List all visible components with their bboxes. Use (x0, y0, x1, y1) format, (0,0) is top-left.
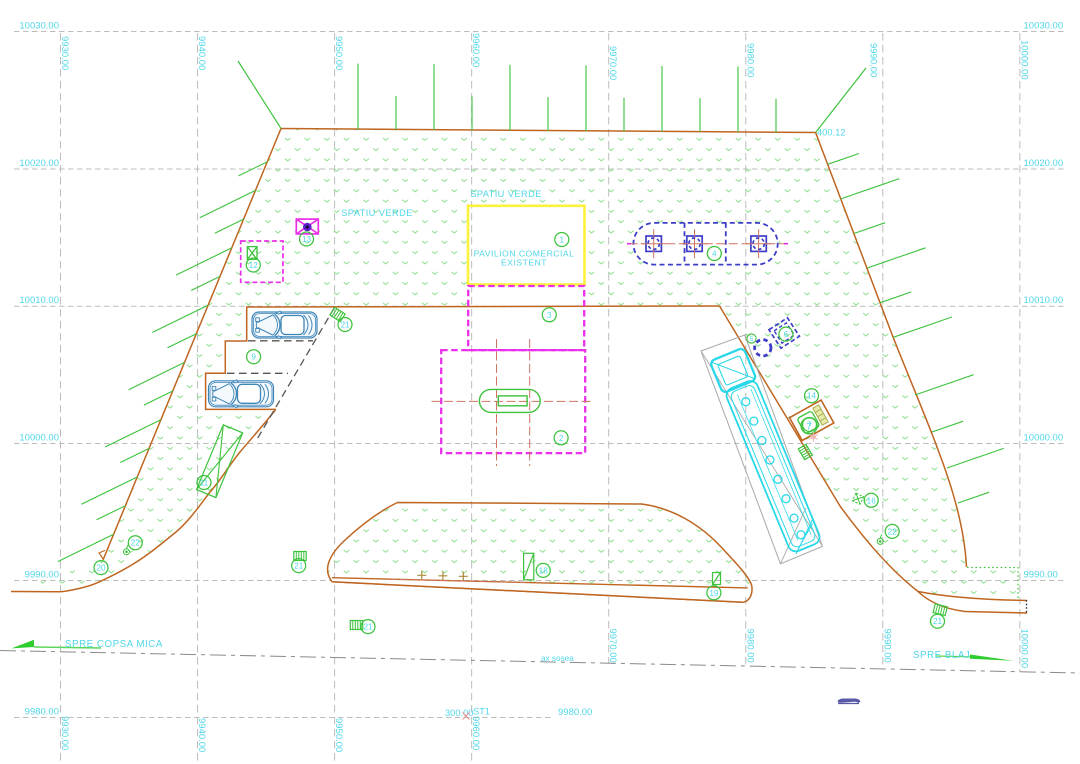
svg-text:10000.00: 10000.00 (1018, 629, 1029, 669)
svg-text:22: 22 (888, 527, 898, 536)
svg-text:19: 19 (709, 589, 719, 598)
svg-text:10010.00: 10010.00 (1024, 295, 1064, 306)
svg-text:SPRE COPSA MICA: SPRE COPSA MICA (65, 639, 163, 650)
svg-text:SPATIU VERDE: SPATIU VERDE (341, 208, 413, 218)
svg-text:SPATIU VERDE: SPATIU VERDE (470, 189, 542, 199)
svg-text:9: 9 (251, 353, 256, 362)
svg-text:10000.00: 10000.00 (1024, 432, 1064, 443)
svg-text:7: 7 (807, 421, 812, 430)
svg-text:9960.00: 9960.00 (470, 33, 481, 67)
svg-text:4: 4 (712, 250, 717, 259)
svg-text:SPRE BLAJ: SPRE BLAJ (913, 650, 970, 661)
svg-text:6: 6 (784, 330, 789, 339)
svg-text:5: 5 (750, 336, 754, 343)
svg-text:10020.00: 10020.00 (1024, 158, 1064, 169)
svg-text:21: 21 (340, 321, 350, 330)
svg-text:10030.00: 10030.00 (1024, 20, 1064, 31)
svg-text:9930.00: 9930.00 (59, 36, 70, 70)
svg-text:2: 2 (559, 434, 564, 443)
svg-text:EXISTENT: EXISTENT (501, 257, 547, 267)
svg-text:9960.00: 9960.00 (470, 716, 481, 750)
svg-text:9930.00: 9930.00 (59, 716, 70, 750)
svg-text:13: 13 (302, 235, 312, 244)
svg-text:16: 16 (867, 496, 877, 505)
svg-text:10000.00: 10000.00 (1018, 40, 1029, 80)
svg-text:9980.00: 9980.00 (744, 629, 755, 663)
svg-text:9970.00: 9970.00 (607, 46, 618, 80)
svg-text:9950.00: 9950.00 (333, 36, 344, 70)
svg-text:9940.00: 9940.00 (196, 36, 207, 70)
svg-text:9980.00: 9980.00 (25, 706, 59, 717)
svg-text:14: 14 (807, 392, 817, 401)
svg-text:10000.00: 10000.00 (19, 432, 59, 443)
svg-text:10010.00: 10010.00 (19, 295, 59, 306)
svg-text:10030.00: 10030.00 (19, 20, 59, 31)
svg-text:10020.00: 10020.00 (19, 158, 59, 169)
svg-text:9990.00: 9990.00 (881, 629, 892, 663)
svg-text:400.12: 400.12 (817, 128, 845, 138)
svg-text:22: 22 (131, 539, 141, 548)
svg-text:9980.00: 9980.00 (558, 707, 592, 718)
svg-text:9990.00: 9990.00 (867, 43, 878, 77)
svg-text:18: 18 (539, 566, 549, 575)
svg-text:3: 3 (547, 311, 552, 320)
svg-text:11: 11 (200, 479, 209, 488)
svg-text:9980.00: 9980.00 (744, 43, 755, 77)
svg-text:21: 21 (933, 617, 943, 626)
svg-text:1: 1 (560, 236, 565, 245)
svg-text:12: 12 (249, 261, 259, 270)
svg-text:21: 21 (294, 562, 304, 571)
svg-text:9990.00: 9990.00 (1024, 569, 1058, 580)
svg-text:9940.00: 9940.00 (196, 718, 207, 752)
svg-text:20: 20 (96, 564, 106, 573)
svg-text:ax sosea: ax sosea (541, 654, 574, 663)
svg-text:9950.00: 9950.00 (333, 718, 344, 752)
svg-text:9970.00: 9970.00 (607, 629, 618, 663)
svg-text:ST1: ST1 (473, 707, 490, 717)
svg-text:21: 21 (363, 623, 373, 632)
